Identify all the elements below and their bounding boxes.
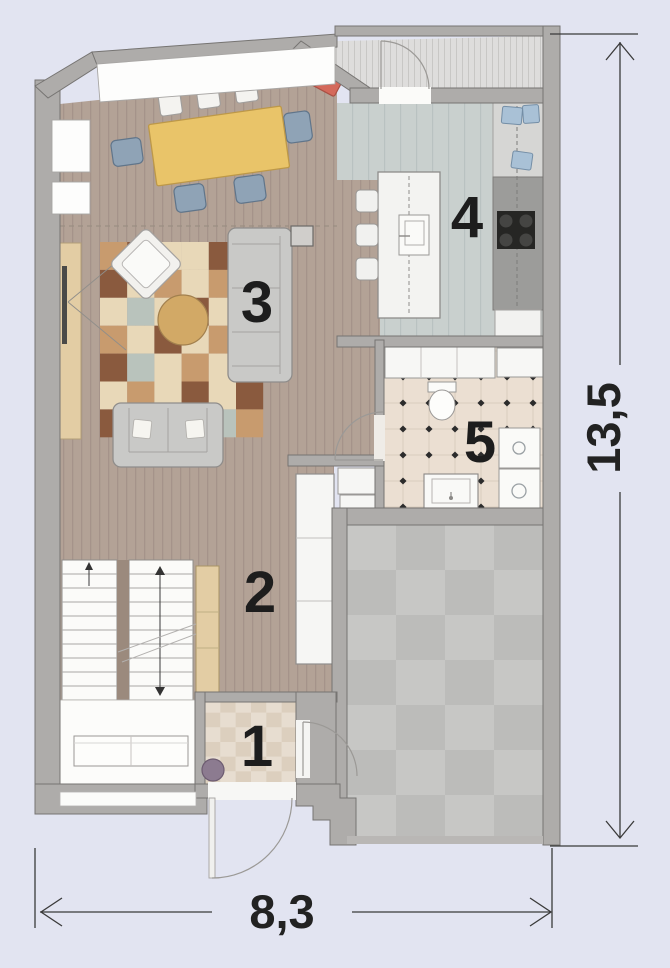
tile-cell [282,742,297,757]
tile-cell [445,750,494,795]
tile-cell [100,298,127,326]
bar-stools [356,190,378,280]
tile-cell [396,570,445,615]
tile-cell [494,705,543,750]
tile-cell [182,354,209,382]
coffee-table [158,295,208,345]
wall-bathroom-top [337,336,543,347]
tile-cell [347,705,396,750]
tile-cell [205,727,220,742]
laundry-nook-units [338,468,376,513]
tile-cell [205,742,220,757]
floor-plan-drawing: 13,5 8,3 1 2 3 4 5 [0,0,670,968]
tile-cell [100,354,127,382]
staircase [60,560,196,786]
toilet [428,382,456,420]
dining-chair [233,174,266,204]
garage-door-edge [347,836,543,844]
tile-cell [396,750,445,795]
tile-cell [220,713,235,728]
plant-pot [202,759,224,781]
wall-garage-top [332,508,543,525]
wall-porch-top [335,26,543,36]
bath-sink [424,474,478,508]
wall-right [543,26,560,845]
hall-cabinet [196,566,219,696]
stool [356,224,378,246]
tile-cell [494,570,543,615]
tile-cell [494,795,543,840]
tile-cell [182,242,209,270]
stool [356,258,378,280]
dimension-height-label: 13,5 [577,382,630,473]
tile-cell [347,615,396,660]
tile-cell [220,742,235,757]
tile-cell [396,705,445,750]
dining-chair [283,110,313,143]
room-label-entry: 1 [241,714,273,779]
wall-entry-left [195,692,205,794]
window-bottom [60,792,196,806]
front-door-leaf [209,798,215,878]
floor-plan-page: 13,5 8,3 1 2 3 4 5 [0,0,670,968]
room-label-bathroom: 5 [464,410,496,475]
stool [356,190,378,212]
tile-cell [347,525,396,570]
tile-cell [445,615,494,660]
wall-bathroom-left-b [375,459,384,515]
tile-cell [494,615,543,660]
room-label-living-room: 3 [241,270,273,335]
opening-front-door [208,782,296,800]
tile-cell [154,354,181,382]
window-left-1 [52,120,90,172]
throw-pillow [132,419,152,439]
bath-counter [385,345,495,378]
tile-cell [282,757,297,772]
tile-cell [236,382,263,410]
bath-shelf [497,348,543,377]
kitchen-island [378,172,440,318]
hall-closet [296,474,334,664]
tile-cell [282,713,297,728]
tile-cell [347,660,396,705]
tile-cell [445,525,494,570]
tile-cell [282,727,297,742]
wall-bathroom-left-a [375,340,384,417]
tile-cell [205,713,220,728]
tile-cell [445,705,494,750]
tile-cell [445,795,494,840]
tile-cell [127,298,154,326]
dining-chair [110,137,143,167]
tile-cell [127,326,154,354]
stair-stringer [117,560,129,700]
tile-cell [127,354,154,382]
opening-porch-door [379,87,431,104]
wall-kitchen-top [350,88,543,103]
washer-dryer [499,428,540,511]
tile-cell [182,270,209,298]
tile-cell [396,525,445,570]
counter-sink [495,310,541,336]
throw-pillow [185,419,205,439]
garage-tile-checker [347,525,543,840]
tile-cell [445,570,494,615]
tile-cell [396,660,445,705]
tile-cell [236,409,263,437]
tile-cell [396,615,445,660]
dimension-width-label: 8,3 [249,885,314,938]
opening-bathroom-door [374,415,385,461]
tv-cabinet-body [57,243,81,439]
room-label-hallway: 2 [244,560,276,625]
tile-cell [396,795,445,840]
window-left-2 [52,182,90,214]
tile-cell [220,727,235,742]
dining-chair [173,183,206,213]
tile-cell [494,660,543,705]
tile-cell [494,750,543,795]
tv-screen [62,266,67,344]
tile-cell [494,525,543,570]
loveseat [113,403,223,467]
tile-cell [347,570,396,615]
kitchen-counter [493,103,543,336]
pillar [291,226,313,246]
tile-cell [347,750,396,795]
tile-cell [445,660,494,705]
room-label-kitchen: 4 [451,185,483,250]
